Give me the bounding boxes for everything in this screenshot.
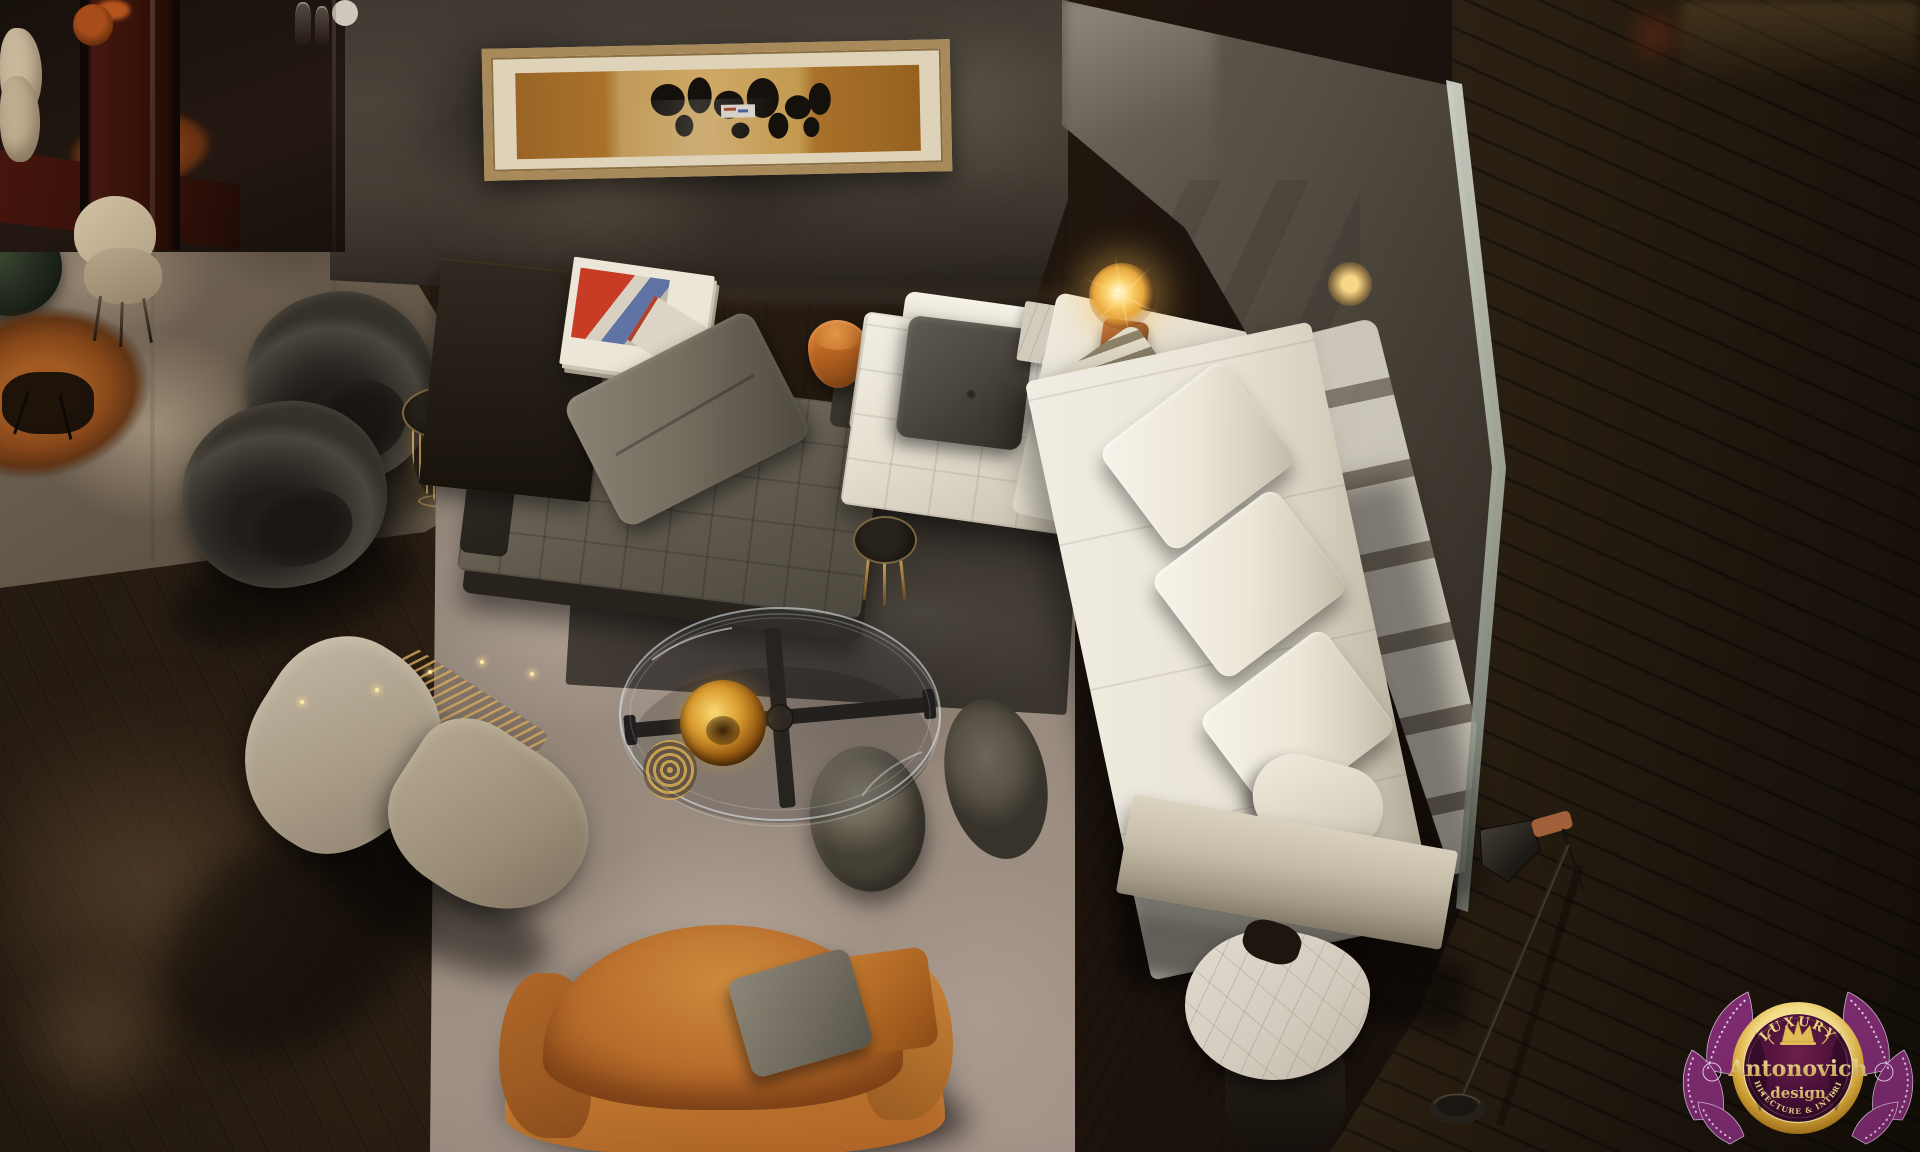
black-gold-side-stool xyxy=(853,516,917,610)
gold-sparkle xyxy=(375,688,379,692)
mirror-reflected-lamp xyxy=(1328,262,1372,306)
stool-leg xyxy=(883,560,886,606)
gold-sparkle xyxy=(428,670,432,674)
wine-glass xyxy=(315,6,329,44)
gold-decor-object xyxy=(643,740,697,800)
glass-partition-edge xyxy=(332,0,336,292)
showroom-photo: LUXURY Antonovich · design · ARCHITECTUR… xyxy=(0,0,1920,1152)
gold-sparkle xyxy=(300,700,304,704)
tub-chair-seat xyxy=(240,478,360,576)
lamp-ray xyxy=(1091,265,1153,327)
stool-top xyxy=(853,516,917,564)
dark-gray-tufted-pillow xyxy=(895,315,1035,451)
framed-abstract-artwork xyxy=(482,39,953,181)
orange-stool-top xyxy=(73,4,113,46)
logo-brand-text: Antonovich xyxy=(1727,1056,1867,1082)
stool-top xyxy=(814,324,862,350)
gold-sparkle xyxy=(530,672,534,676)
wall-red-reflection xyxy=(1620,0,1690,70)
wine-glass xyxy=(295,2,311,44)
artwork-glass-reflection xyxy=(492,94,943,161)
black-floor-lamp xyxy=(1420,795,1670,1152)
antonovich-design-logo: LUXURY Antonovich · design · ARCHITECTUR… xyxy=(1678,972,1918,1152)
cream-chair-seat xyxy=(84,248,162,304)
gold-sparkle xyxy=(480,660,484,664)
amber-glass-table-lamp xyxy=(1089,263,1155,329)
wall-top-light xyxy=(1680,0,1920,85)
